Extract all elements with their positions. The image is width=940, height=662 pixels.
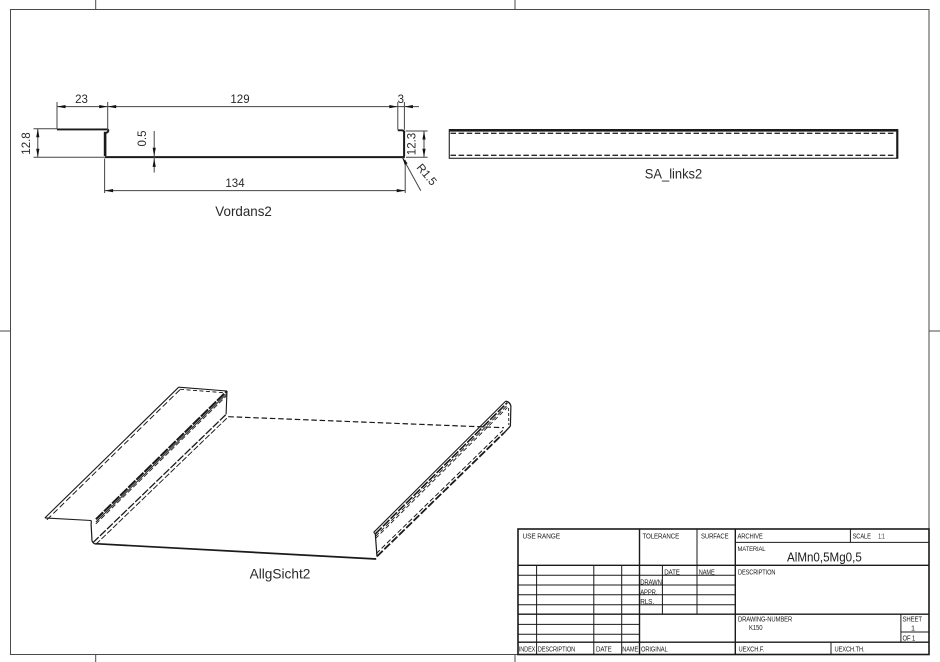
svg-text:SCALE: SCALE (853, 532, 871, 541)
svg-text:APPR.: APPR. (640, 587, 657, 596)
svg-text:12.3: 12.3 (407, 133, 419, 155)
svg-text:1: 1 (911, 623, 915, 632)
svg-text:3: 3 (398, 94, 404, 106)
svg-text:DRAWN: DRAWN (640, 578, 662, 587)
svg-text:SA_links2: SA_links2 (645, 165, 703, 181)
svg-text:0.5: 0.5 (137, 131, 149, 147)
svg-text:AlMn0,5Mg0,5: AlMn0,5Mg0,5 (787, 549, 862, 564)
svg-text:USE RANGE: USE RANGE (523, 532, 561, 541)
svg-text:INDEX: INDEX (519, 645, 536, 654)
svg-text:K150: K150 (749, 623, 762, 632)
svg-text:AllgSicht2: AllgSicht2 (250, 565, 311, 581)
svg-text:SHEET: SHEET (903, 615, 923, 624)
svg-text:NAME: NAME (699, 567, 715, 576)
svg-text:1:1: 1:1 (878, 532, 885, 541)
svg-text:DATE: DATE (664, 567, 680, 576)
svg-text:DESCRIPTION: DESCRIPTION (538, 645, 575, 654)
svg-text:OF 1: OF 1 (903, 634, 916, 643)
svg-text:UEXCH.TH.: UEXCH.TH. (835, 645, 865, 654)
svg-text:134: 134 (225, 178, 245, 190)
svg-text:129: 129 (230, 94, 249, 106)
svg-text:ARCHIVE: ARCHIVE (738, 532, 763, 541)
svg-text:12.8: 12.8 (21, 132, 33, 154)
svg-text:DESCRIPTION: DESCRIPTION (738, 567, 775, 576)
svg-text:MATERIAL: MATERIAL (738, 546, 766, 553)
svg-text:NAME: NAME (622, 645, 638, 654)
svg-text:ORIGINAL: ORIGINAL (641, 645, 668, 654)
svg-text:RLS.: RLS. (640, 597, 654, 606)
svg-text:UEXCH.F.: UEXCH.F. (739, 645, 765, 654)
svg-text:Vordans2: Vordans2 (215, 203, 272, 219)
svg-text:SURFACE: SURFACE (701, 532, 729, 541)
svg-text:TOLERANCE: TOLERANCE (643, 532, 680, 541)
svg-text:DRAWING-NUMBER: DRAWING-NUMBER (738, 615, 792, 624)
svg-text:DATE: DATE (596, 645, 612, 654)
svg-text:23: 23 (75, 94, 88, 106)
